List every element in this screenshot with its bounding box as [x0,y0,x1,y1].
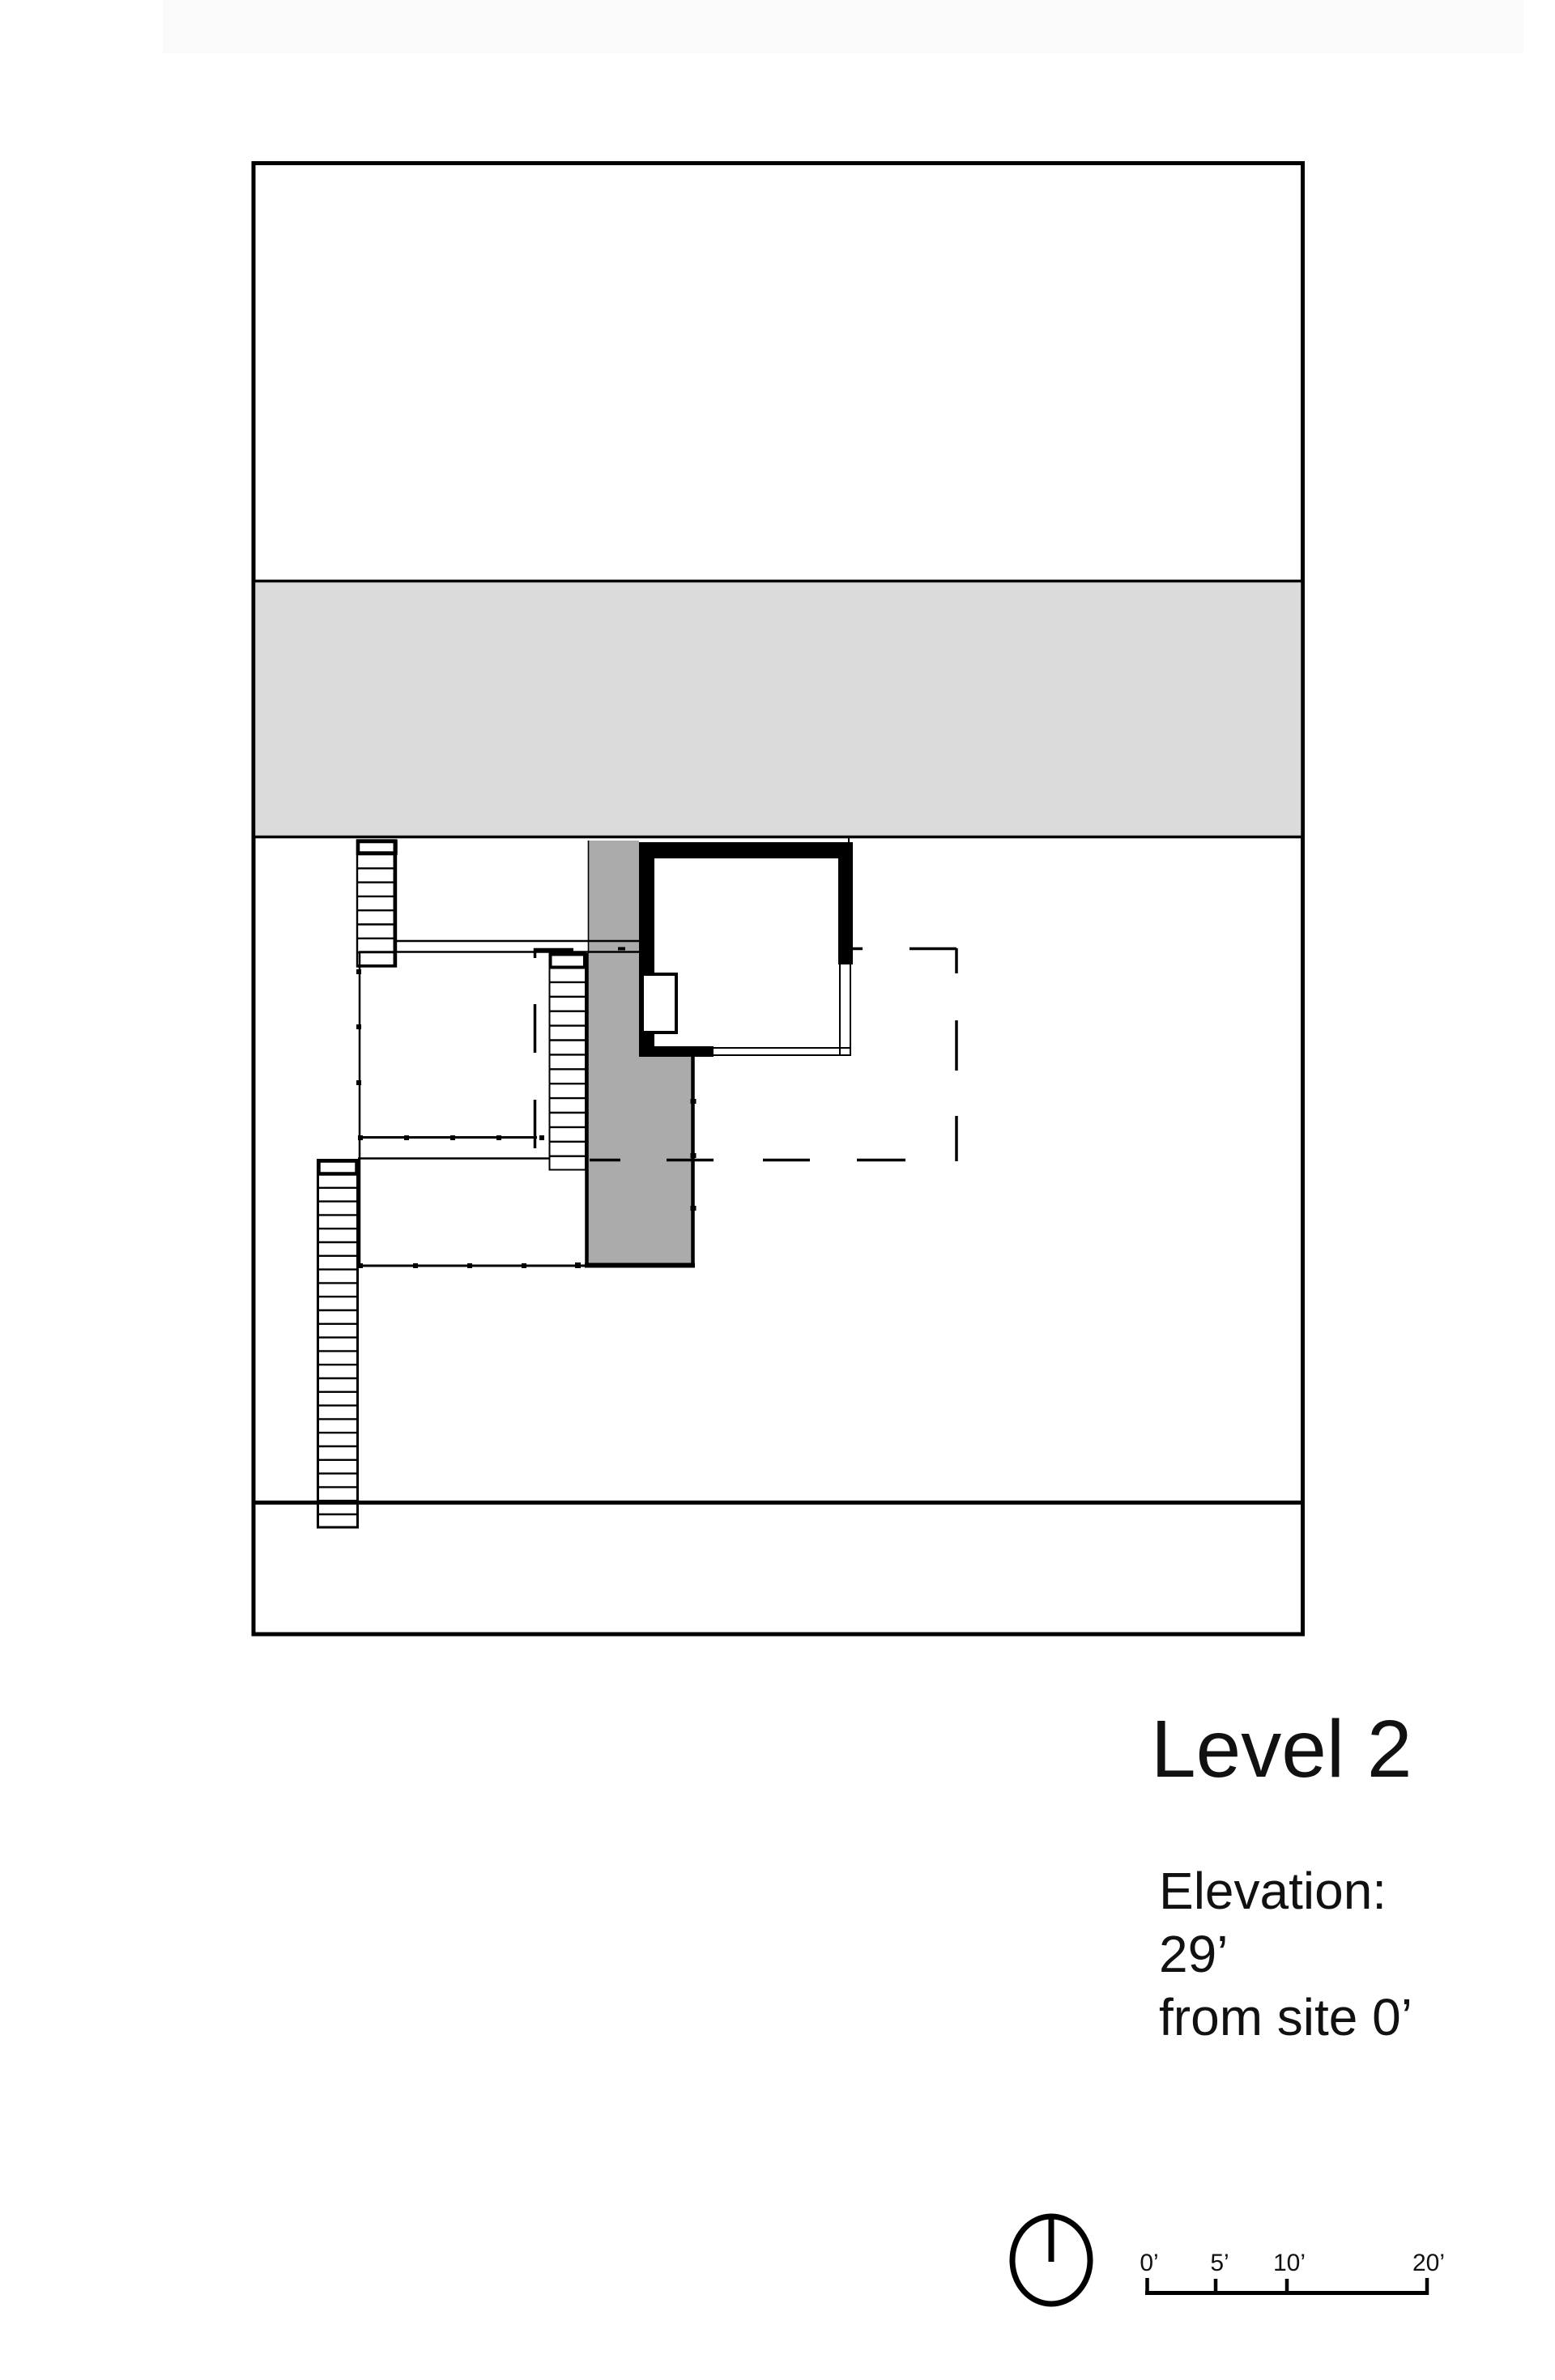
stair-lower [317,1160,358,1528]
site-boundary [252,164,1305,1635]
shaded-band [254,581,1303,837]
scale-label-0: 0’ [1140,2250,1158,2276]
north-arrow-icon [1012,2216,1090,2304]
scale-bar: 0’ 5’ 10’ 20’ [1140,2250,1445,2295]
door-leaf [642,974,676,1032]
level-title: Level 2 [1151,1705,1412,1793]
black-walled-room [639,837,853,1057]
elevation-note-line2: 29’ [1159,1922,1412,1986]
scale-label-10: 10’ [1273,2250,1306,2276]
scale-label-20: 20’ [1412,2250,1445,2276]
stair-upper [357,840,396,967]
elevation-note-line3: from site 0’ [1159,1986,1412,2049]
scale-label-5: 5’ [1210,2250,1229,2276]
elevation-note: Elevation: 29’ from site 0’ [1159,1859,1412,2049]
drawing-sheet: 0’ 5’ 10’ 20’ Level 2 Elevation: 29’ fro… [0,0,1555,2380]
elevation-note-line1: Elevation: [1159,1859,1412,1922]
